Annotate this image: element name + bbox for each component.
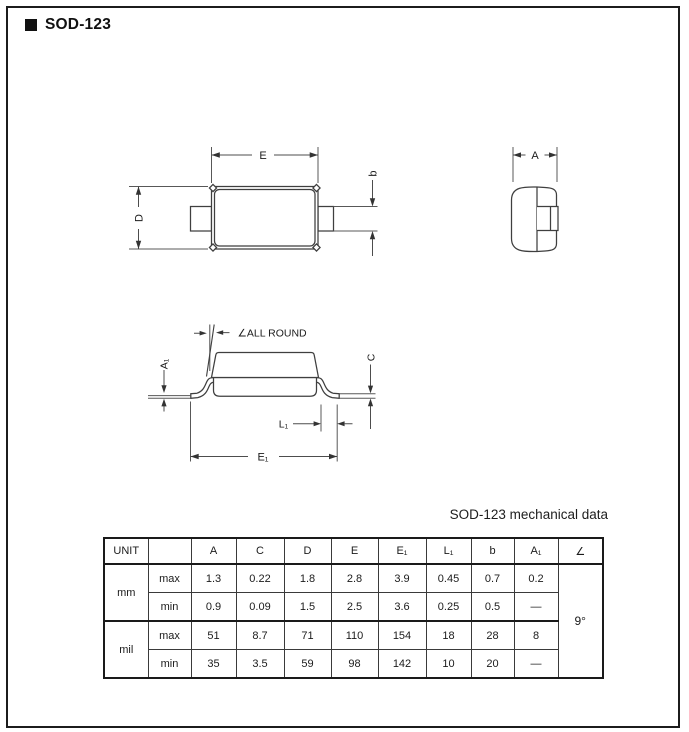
table-row: mil max 51 8.7 71 110 154 18 28 8 <box>104 621 603 650</box>
left-lead <box>191 207 212 232</box>
column-header: b <box>471 538 514 564</box>
unit-cell: mil <box>104 621 148 678</box>
table-cell: 59 <box>284 650 331 679</box>
right-lead <box>318 207 334 232</box>
table-cell: 0.45 <box>426 564 471 593</box>
arrowhead-icon <box>314 421 321 426</box>
column-header: E₁ <box>378 538 426 564</box>
arrowhead-icon <box>329 454 337 459</box>
table-cell: 3.6 <box>378 593 426 622</box>
table-cell: 8 <box>514 621 558 650</box>
arrowhead-icon <box>136 187 141 195</box>
table-cell: 0.2 <box>514 564 558 593</box>
table-cell: 0.9 <box>191 593 236 622</box>
table-cell: 2.8 <box>331 564 378 593</box>
dim-label-C: C <box>366 353 378 361</box>
limit-cell: min <box>148 593 191 622</box>
table-cell: 0.22 <box>236 564 284 593</box>
table-cell: 8.7 <box>236 621 284 650</box>
column-header: D <box>284 538 331 564</box>
unit-cell: mm <box>104 564 148 621</box>
table-cell: 51 <box>191 621 236 650</box>
table-row: min 0.9 0.09 1.5 2.5 3.6 0.25 0.5 — <box>104 593 603 622</box>
table-cell: 3.5 <box>236 650 284 679</box>
dim-label-A1: A₁ <box>158 358 170 369</box>
table-cell: 154 <box>378 621 426 650</box>
arrowhead-icon <box>513 152 521 157</box>
end-view-drawing: A <box>466 140 596 258</box>
right-gullwing-lead <box>315 378 339 399</box>
table-cell: 18 <box>426 621 471 650</box>
header-row: UNIT A C D E E₁ L₁ b A₁ ∠ <box>104 538 603 564</box>
arrowhead-icon <box>368 386 373 394</box>
dim-label-A: A <box>531 150 539 162</box>
table-cell: 0.09 <box>236 593 284 622</box>
table-cell: 0.25 <box>426 593 471 622</box>
table-heading: SOD-123 mechanical data <box>450 507 608 522</box>
table-cell: 1.8 <box>284 564 331 593</box>
dim-label-b: b <box>367 170 379 176</box>
arrowhead-icon <box>212 152 220 157</box>
column-header: A <box>191 538 236 564</box>
column-header: ∠ <box>558 538 603 564</box>
package-name: SOD-123 <box>45 16 111 34</box>
seating-plane-lines <box>148 396 191 399</box>
column-header: UNIT <box>104 538 148 564</box>
limit-cell: min <box>148 650 191 679</box>
table-row: mm max 1.3 0.22 1.8 2.8 3.9 0.45 0.7 0.2… <box>104 564 603 593</box>
lead-end-stub <box>537 207 558 231</box>
table-cell: 1.5 <box>284 593 331 622</box>
dim-label-D: D <box>134 214 146 222</box>
limit-cell: max <box>148 621 191 650</box>
arrowhead-icon <box>216 330 223 335</box>
arrowhead-icon <box>200 331 207 336</box>
dim-label-E: E <box>259 150 266 162</box>
arrowhead-icon <box>368 399 373 407</box>
package-body-outline <box>212 187 319 250</box>
table-cell: — <box>514 650 558 679</box>
table-cell: 1.3 <box>191 564 236 593</box>
table-cell: 2.5 <box>331 593 378 622</box>
arrowhead-icon <box>337 421 344 426</box>
side-view-drawing: ∠ALL ROUND A₁ C L₁ E₁ <box>140 318 386 468</box>
table-cell: 10 <box>426 650 471 679</box>
package-body-upper <box>212 353 319 378</box>
left-gullwing-lead <box>191 378 215 399</box>
table-cell: 98 <box>331 650 378 679</box>
mechanical-data-table: UNIT A C D E E₁ L₁ b A₁ ∠ mm max 1.3 0.2… <box>103 537 604 679</box>
table-cell: 110 <box>331 621 378 650</box>
column-header: L₁ <box>426 538 471 564</box>
arrowhead-icon <box>370 198 375 206</box>
column-header: C <box>236 538 284 564</box>
draft-angle-arrow-tail <box>194 333 230 334</box>
column-header: E <box>331 538 378 564</box>
table-cell: 3.9 <box>378 564 426 593</box>
table-cell: 0.7 <box>471 564 514 593</box>
top-view-drawing: E D b <box>120 140 385 260</box>
dim-label-L1: L₁ <box>279 419 289 431</box>
table-cell: 71 <box>284 621 331 650</box>
angle-value-cell: 9° <box>558 564 603 678</box>
table-cell: 20 <box>471 650 514 679</box>
dim-label-E1: E₁ <box>257 451 268 463</box>
table-row: min 35 3.5 59 98 142 10 20 — <box>104 650 603 679</box>
table-cell: 142 <box>378 650 426 679</box>
arrowhead-icon <box>191 454 199 459</box>
arrowhead-icon <box>370 231 375 239</box>
square-bullet-icon <box>25 19 37 31</box>
package-body-lower <box>214 378 317 397</box>
limit-cell: max <box>148 564 191 593</box>
table-cell: 35 <box>191 650 236 679</box>
column-header: A₁ <box>514 538 558 564</box>
arrowhead-icon <box>136 241 141 249</box>
arrowhead-icon <box>161 385 166 393</box>
all-round-label: ∠ALL ROUND <box>238 328 308 340</box>
table-cell: 28 <box>471 621 514 650</box>
dimension-extension-line <box>334 207 378 232</box>
arrowhead-icon <box>310 152 318 157</box>
table-cell: 0.5 <box>471 593 514 622</box>
section-title: SOD-123 <box>25 16 111 34</box>
column-header <box>148 538 191 564</box>
datasheet-page: SOD-123 E D b <box>0 0 689 732</box>
table-cell: — <box>514 593 558 622</box>
arrowhead-icon <box>161 399 166 407</box>
dimension-extension-line <box>339 394 375 399</box>
arrowhead-icon <box>549 152 557 157</box>
